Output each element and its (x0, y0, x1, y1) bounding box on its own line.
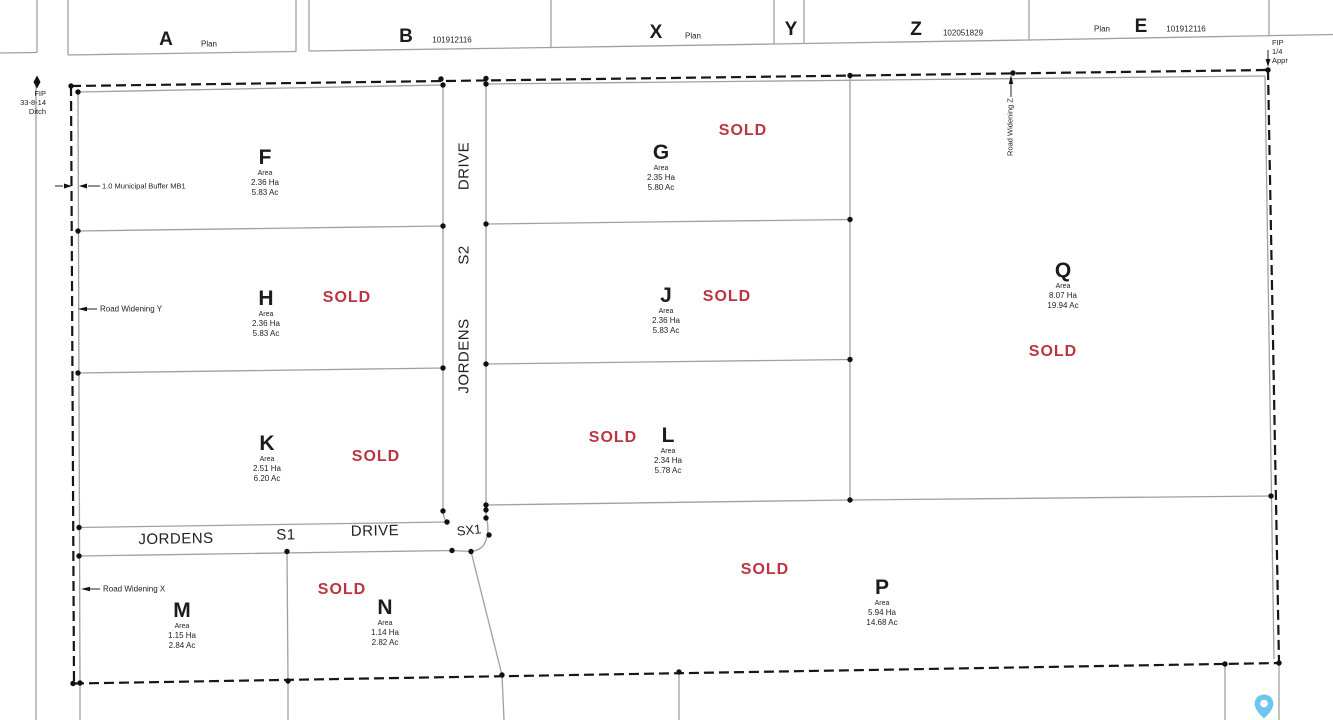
street-horizontal-word-jordens: JORDENS (138, 530, 213, 548)
lot-Q-label: Q Area 8.07 Ha 19.94 Ac (1047, 260, 1078, 311)
lot-J-letter: J (652, 285, 680, 306)
road-widening-x-annotation: Road Widening X (103, 585, 165, 594)
road-widening-z-annotation: Road Widening Z (1006, 98, 1015, 156)
lot-P-sold-badge: SOLD (741, 561, 789, 579)
lot-Q-letter: Q (1047, 260, 1078, 281)
lot-N-sold-badge: SOLD (318, 581, 366, 599)
lot-K-letter: K (253, 433, 281, 454)
lot-J-sold-badge: SOLD (703, 288, 751, 306)
parcel-Y-label: Y (785, 19, 798, 41)
parcel-Z-label: Z (910, 19, 922, 41)
lot-G-letter: G (647, 142, 675, 163)
lot-G-label: G Area 2.35 Ha 5.80 Ac (647, 142, 675, 193)
lot-H-letter: H (252, 288, 280, 309)
fip-quarter-appr-annotation: FIP 1/4 Appr (1272, 38, 1288, 65)
parcel-A-label: A (159, 29, 173, 51)
plat-linework (0, 0, 1333, 720)
road-widening-y-annotation: Road Widening Y (100, 305, 162, 314)
lot-K-label: K Area 2.51 Ha 6.20 Ac (253, 433, 281, 484)
lot-G-sold-badge: SOLD (719, 122, 767, 140)
lot-N-letter: N (371, 597, 399, 618)
lot-F-label: F Area 2.36 Ha 5.83 Ac (251, 147, 279, 198)
lot-M-letter: M (168, 600, 196, 621)
municipal-buffer-annotation: 1.0 Municipal Buffer MB1 (102, 182, 186, 191)
lot-P-letter: P (866, 577, 897, 598)
survey-plat: A Plan B 101912116 X Plan Y Z 102051829 … (0, 0, 1333, 720)
lot-J-label: J Area 2.36 Ha 5.83 Ac (652, 285, 680, 336)
lot-H-sold-badge: SOLD (323, 289, 371, 307)
parcel-B-note: 101912116 (432, 36, 471, 45)
lot-L-sold-badge: SOLD (589, 429, 637, 447)
lot-L-letter: L (654, 425, 682, 446)
fip-ditch-marker-icon (34, 76, 41, 89)
street-vertical-word-jordens: JORDENS (456, 318, 473, 393)
map-pin-icon[interactable] (1252, 693, 1276, 720)
parcel-X-note: Plan (685, 32, 701, 41)
parcel-A-note: Plan (201, 40, 217, 49)
parcel-B-label: B (399, 26, 413, 48)
parcel-E-prefix: Plan (1094, 25, 1110, 34)
lot-K-sold-badge: SOLD (352, 448, 400, 466)
lot-N-label: N Area 1.14 Ha 2.82 Ac (371, 597, 399, 648)
parcel-Z-note: 102051829 (943, 29, 983, 38)
lot-H-label: H Area 2.36 Ha 5.83 Ac (252, 288, 280, 339)
lot-F-letter: F (251, 147, 279, 168)
lot-M-label: M Area 1.15 Ha 2.84 Ac (168, 600, 196, 651)
lot-P-label: P Area 5.94 Ha 14.68 Ac (866, 577, 897, 628)
fip-ditch-annotation: FIP 33-8-14 Ditch (2, 89, 46, 116)
lot-L-label: L Area 2.34 Ha 5.78 Ac (654, 425, 682, 476)
street-vertical-word-s2: S2 (456, 245, 473, 264)
parcel-X-label: X (650, 22, 663, 44)
street-horizontal-word-s1: S1 (276, 526, 296, 543)
lot-Q-sold-badge: SOLD (1029, 343, 1077, 361)
parcel-E-note: 101912116 (1166, 25, 1205, 34)
junction-sx1-label: SX1 (456, 521, 482, 538)
street-horizontal-word-drive: DRIVE (351, 522, 400, 540)
lot-boundary-lines (0, 0, 1333, 720)
street-vertical-word-drive: DRIVE (456, 142, 473, 190)
parcel-E-label: E (1135, 16, 1148, 38)
